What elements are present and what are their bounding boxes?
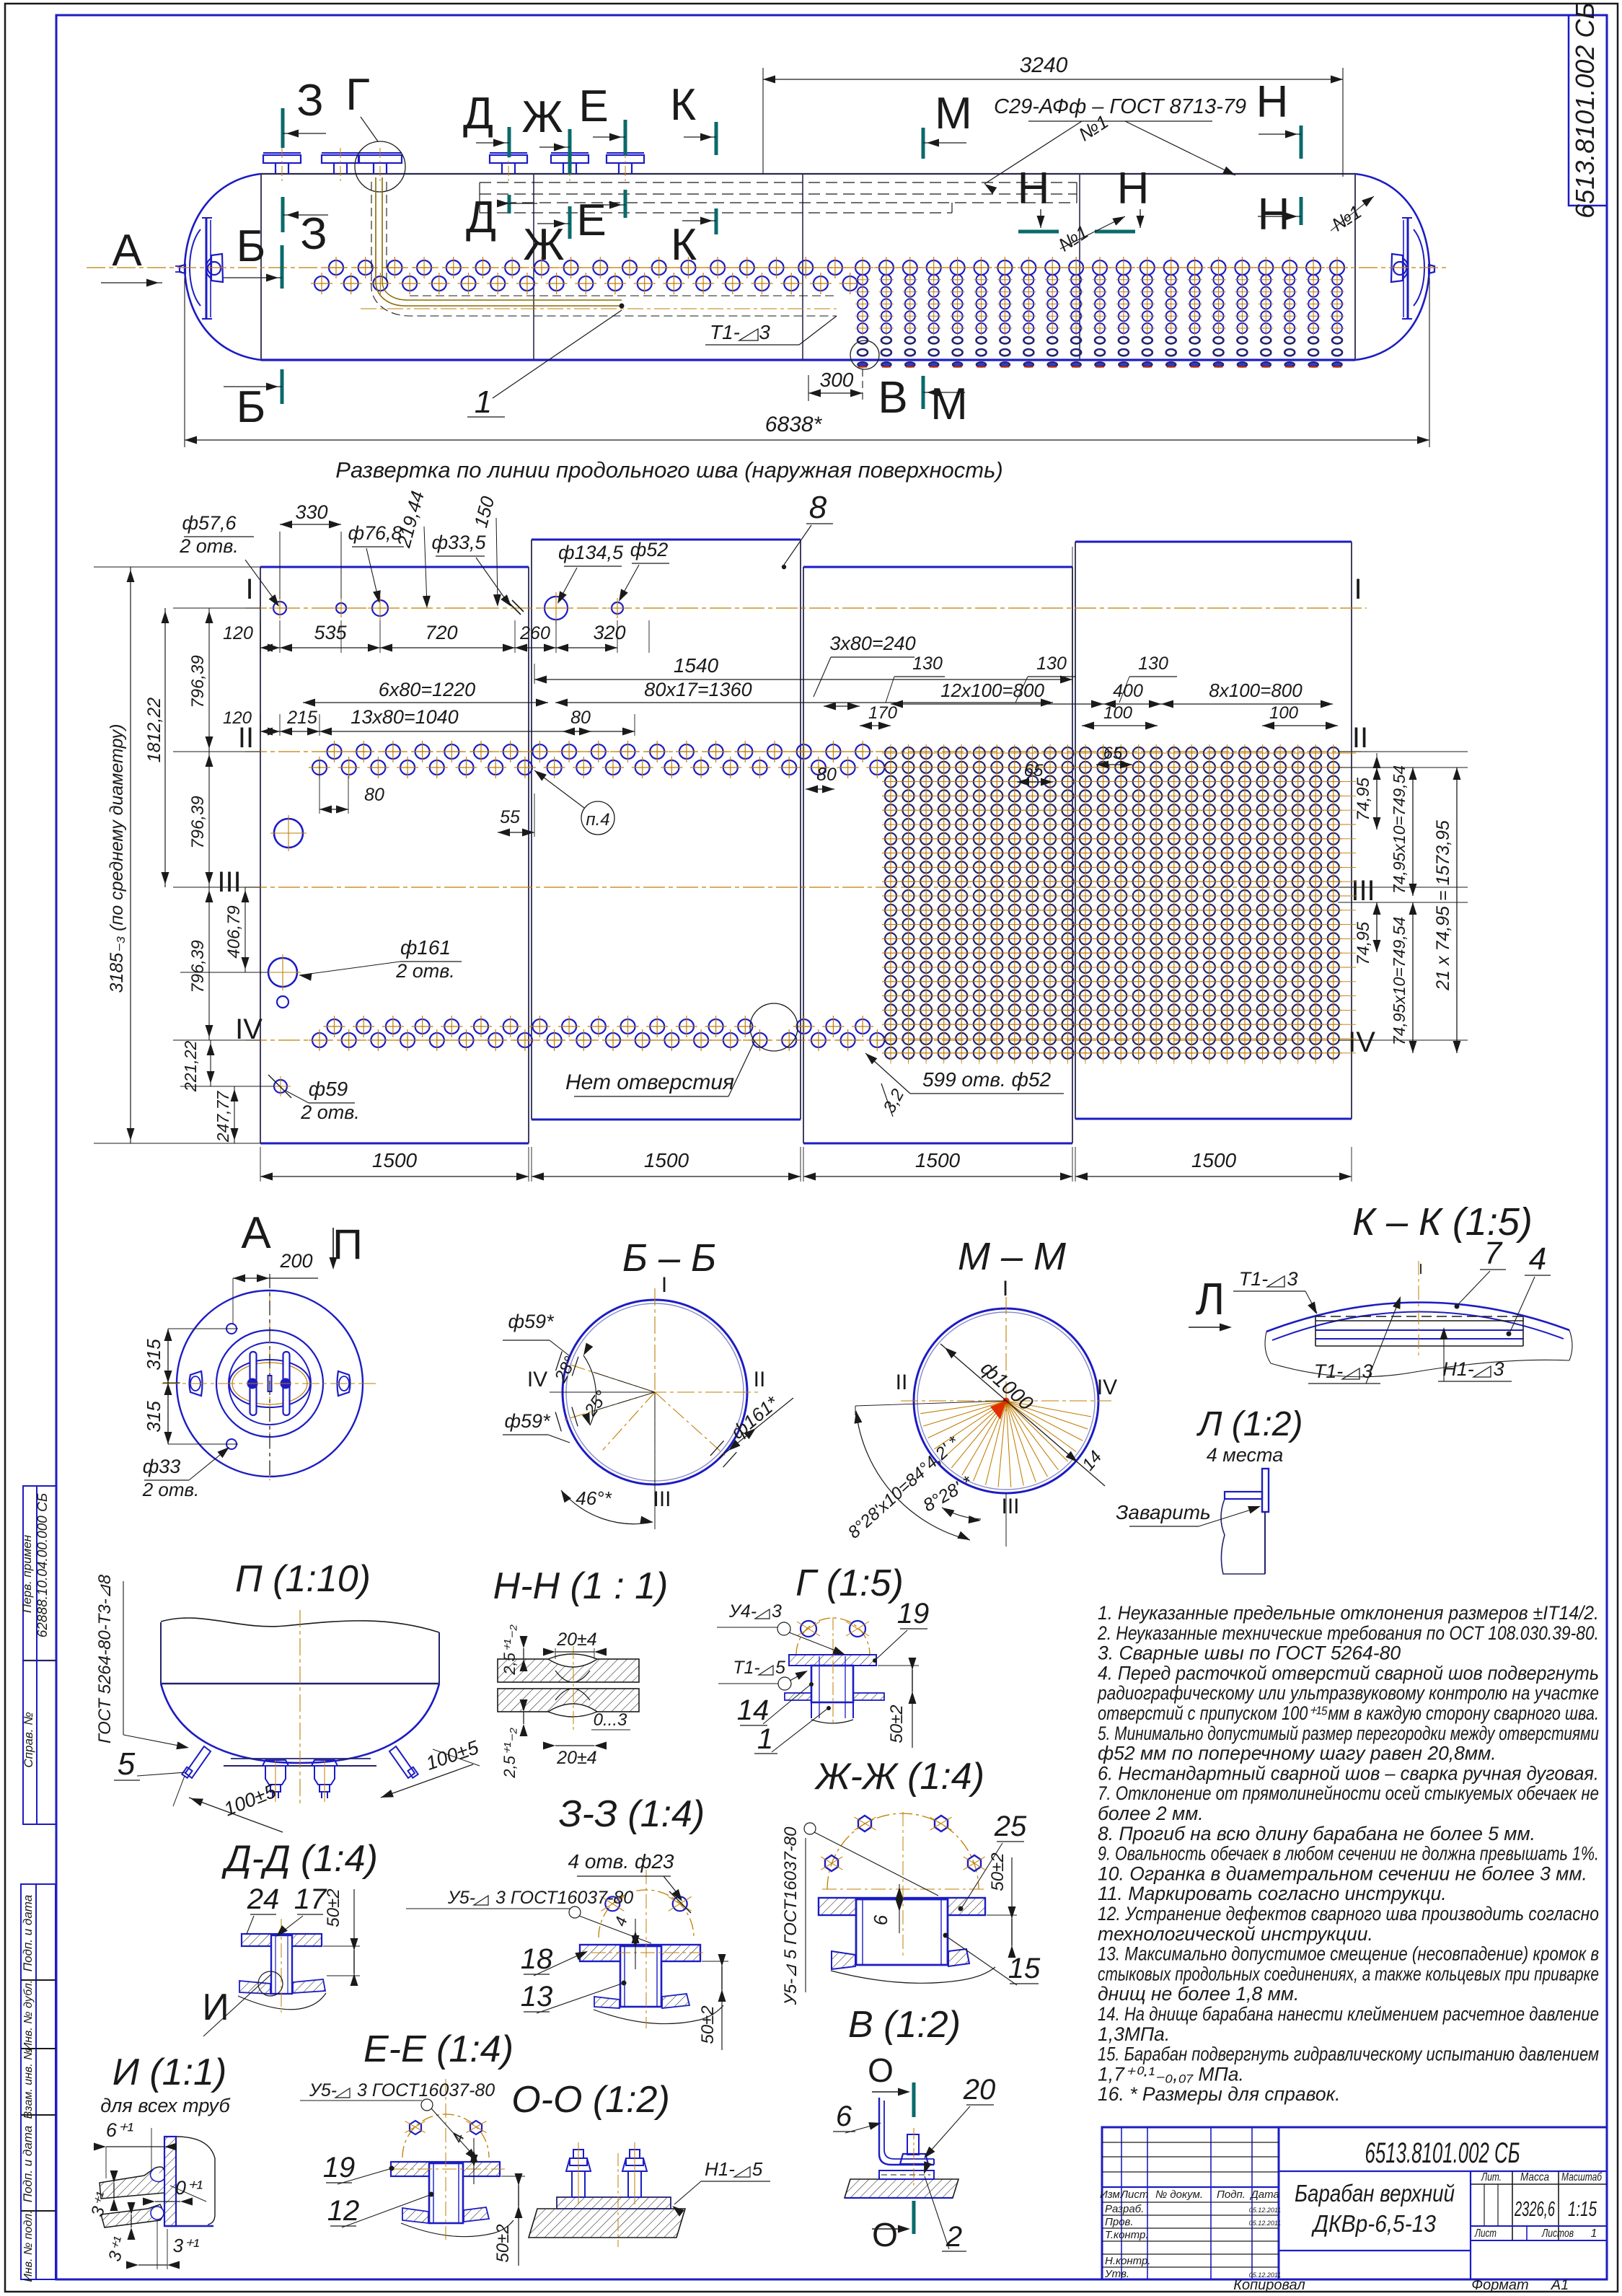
svg-text:З: З (296, 76, 323, 126)
svg-text:IV: IV (1097, 1376, 1117, 1399)
svg-text:ф134,5: ф134,5 (558, 542, 624, 563)
svg-text:К: К (670, 80, 696, 130)
svg-text:Листов: Листов (1541, 2227, 1574, 2240)
svg-text:Т1-: Т1- (733, 1658, 760, 1678)
svg-text:260: 260 (519, 623, 550, 643)
svg-text:74,95х10=749,54: 74,95х10=749,54 (1390, 765, 1409, 894)
svg-text:ф161: ф161 (400, 936, 451, 959)
svg-text:Б – Б: Б – Б (622, 1236, 716, 1280)
svg-text:Подп. и дата: Подп. и дата (21, 2126, 35, 2202)
svg-text:3. Сварные швы по ГОСТ 5264-8: 3. Сварные швы по ГОСТ 5264-80 (1098, 1642, 1401, 1664)
svg-text:74,95х10=749,54: 74,95х10=749,54 (1390, 917, 1409, 1045)
svg-text:днищ не более 1,8 мм.: днищ не более 1,8 мм. (1098, 1983, 1299, 2005)
svg-text:ф59*: ф59* (504, 1410, 551, 1432)
svg-text:7: 7 (1484, 1236, 1503, 1271)
svg-text:3: 3 (772, 1601, 782, 1622)
svg-text:И: И (202, 1987, 229, 2028)
svg-text:13х80=1040: 13х80=1040 (351, 706, 458, 728)
svg-text:130: 130 (912, 654, 943, 674)
svg-text:Ж: Ж (521, 92, 563, 142)
svg-text:технологической инструкции.: технологической инструкции. (1098, 1923, 1373, 1945)
svg-text:8: 8 (809, 490, 827, 525)
svg-text:Развертка по линии продольного: Развертка по линии продольного шва (нару… (335, 457, 1002, 483)
svg-text:12. Устранение дефектов сварн: 12. Устранение дефектов сварного шва про… (1098, 1903, 1599, 1925)
svg-text:5: 5 (118, 1746, 136, 1782)
svg-text:ф33: ф33 (143, 1456, 181, 1477)
svg-text:50±2: 50±2 (324, 1888, 343, 1927)
svg-text:ф33,5: ф33,5 (431, 532, 486, 553)
svg-text:П (1:10): П (1:10) (235, 1558, 371, 1600)
svg-text:50±2: 50±2 (988, 1852, 1008, 1891)
svg-text:2 отв.: 2 отв. (395, 960, 455, 982)
svg-text:3⁺¹: 3⁺¹ (173, 2235, 200, 2256)
svg-text:Перв. примен: Перв. примен (20, 1534, 34, 1613)
svg-text:I: I (661, 1273, 667, 1297)
svg-text:4. Перед расточкой отверсти: 4. Перед расточкой отверстий сварной шов… (1098, 1662, 1599, 1684)
svg-text:6: 6 (870, 1914, 891, 1925)
svg-text:ф59: ф59 (309, 1078, 348, 1100)
svg-text:3 ГОСТ16037-80: 3 ГОСТ16037-80 (357, 2080, 495, 2101)
svg-text:Л: Л (1196, 1275, 1225, 1324)
svg-text:65: 65 (1103, 744, 1123, 763)
svg-text:11. Маркировать согласно инст: 11. Маркировать согласно инструкци. (1098, 1883, 1447, 1904)
svg-text:III: III (1351, 875, 1375, 907)
svg-text:Е-Е (1:4): Е-Е (1:4) (363, 2028, 514, 2070)
svg-text:1540: 1540 (674, 654, 719, 677)
svg-text:50±2: 50±2 (698, 2005, 718, 2044)
svg-text:И (1:1): И (1:1) (113, 2051, 227, 2093)
svg-text:796,39: 796,39 (188, 796, 208, 848)
svg-text:315: 315 (143, 1339, 164, 1371)
svg-text:Лист: Лист (1120, 2189, 1149, 2201)
svg-text:Д: Д (466, 193, 496, 242)
svg-text:24: 24 (247, 1883, 280, 1915)
svg-text:К – К (1:5): К – К (1:5) (1352, 1200, 1533, 1244)
svg-text:III: III (1001, 1495, 1019, 1518)
svg-text:796,39: 796,39 (188, 655, 208, 708)
svg-text:Формат: Формат (1471, 2277, 1528, 2293)
svg-text:05.12.2011: 05.12.2011 (1249, 2220, 1281, 2227)
svg-text:74,95: 74,95 (1354, 777, 1373, 821)
svg-text:80х17=1360: 80х17=1360 (644, 679, 752, 700)
svg-text:20±4: 20±4 (556, 1748, 596, 1768)
svg-text:200: 200 (279, 1250, 312, 1272)
svg-text:535: 535 (314, 622, 347, 643)
svg-text:247,77: 247,77 (213, 1091, 232, 1143)
svg-text:2,5⁺¹₋₂: 2,5⁺¹₋₂ (501, 1624, 519, 1676)
svg-text:I: I (1002, 1277, 1008, 1301)
svg-text:3: 3 (1287, 1268, 1297, 1290)
svg-text:Д: Д (463, 89, 493, 138)
svg-text:ГОСТ 5264-80-Т3-⊿8: ГОСТ 5264-80-Т3-⊿8 (95, 1574, 115, 1743)
svg-text:13: 13 (521, 1981, 553, 2013)
svg-text:20±4: 20±4 (556, 1629, 596, 1650)
svg-text:80: 80 (816, 765, 837, 785)
svg-text:О: О (868, 2051, 894, 2089)
svg-text:2,5⁺¹₋₂: 2,5⁺¹₋₂ (501, 1728, 519, 1779)
svg-text:14: 14 (737, 1694, 770, 1726)
svg-text:74,95: 74,95 (1354, 921, 1373, 965)
svg-text:ДКВр-6,5-13: ДКВр-6,5-13 (1310, 2210, 1436, 2237)
svg-text:1. Неуказанные предельные отк: 1. Неуказанные предельные отклонения раз… (1098, 1602, 1599, 1624)
svg-text:А1: А1 (1551, 2277, 1569, 2293)
svg-text:ф52 мм по поперечному шагу рав: ф52 мм по поперечному шагу равен 20,8мм. (1098, 1743, 1497, 1764)
svg-text:0...3: 0...3 (594, 1710, 627, 1730)
svg-text:Е: Е (578, 82, 608, 131)
svg-text:Взам. инв. №: Взам. инв. № (22, 2048, 35, 2119)
svg-text:599 отв. ф52: 599 отв. ф52 (922, 1068, 1052, 1091)
svg-text:Н-Н (1 : 1): Н-Н (1 : 1) (493, 1565, 669, 1607)
svg-text:ф57,6: ф57,6 (182, 512, 237, 534)
svg-text:№ докум.: № докум. (1155, 2189, 1203, 2201)
svg-text:А: А (112, 226, 142, 276)
svg-text:Масштаб: Масштаб (1561, 2171, 1603, 2183)
svg-text:отверстий с припуском 100⁺¹⁵мм: отверстий с припуском 100⁺¹⁵мм в каждую … (1098, 1702, 1599, 1724)
svg-text:1500: 1500 (915, 1149, 961, 1171)
svg-text:А: А (241, 1208, 271, 1258)
svg-text:2326,6: 2326,6 (1514, 2198, 1555, 2221)
svg-text:2 отв.: 2 отв. (142, 1479, 200, 1500)
svg-text:Нет отверстия: Нет отверстия (565, 1070, 734, 1094)
svg-text:IV: IV (527, 1368, 547, 1391)
svg-text:ф59*: ф59* (508, 1311, 555, 1332)
svg-text:Заварить: Заварить (1116, 1501, 1211, 1523)
svg-text:1500: 1500 (372, 1149, 418, 1171)
svg-text:Разраб.: Разраб. (1105, 2203, 1144, 2215)
svg-text:55: 55 (500, 807, 520, 827)
svg-text:15: 15 (1008, 1953, 1041, 1984)
svg-text:Д-Д (1:4): Д-Д (1:4) (221, 1838, 378, 1880)
svg-text:2: 2 (946, 2221, 962, 2253)
svg-text:В (1:2): В (1:2) (848, 2004, 961, 2046)
svg-text:более 2 мм.: более 2 мм. (1098, 1803, 1204, 1824)
svg-text:3240: 3240 (1020, 53, 1068, 77)
svg-text:II: II (896, 1371, 908, 1394)
svg-text:0⁺¹: 0⁺¹ (175, 2177, 203, 2199)
svg-text:100: 100 (1103, 703, 1133, 723)
svg-text:У4-: У4- (728, 1601, 757, 1622)
svg-text:З-З (1:4): З-З (1:4) (559, 1793, 705, 1835)
svg-text:05.12.2011: 05.12.2011 (1249, 2207, 1281, 2214)
svg-text:10. Огранка в диаметральном с: 10. Огранка в диаметральном сечении не б… (1098, 1862, 1587, 1884)
svg-text:Т1-: Т1- (1239, 1268, 1269, 1290)
svg-text:Н: Н (1256, 77, 1289, 127)
svg-text:Лит.: Лит. (1481, 2171, 1502, 2183)
svg-text:Инв. № подл.: Инв. № подл. (22, 2210, 35, 2282)
svg-text:18: 18 (521, 1943, 553, 1975)
svg-text:Подп.: Подп. (1217, 2189, 1246, 2201)
svg-text:Копировал: Копировал (1233, 2277, 1305, 2293)
svg-text:Е: Е (576, 195, 606, 245)
svg-text:16. * Размеры для справок.: 16. * Размеры для справок. (1098, 2083, 1341, 2105)
svg-text:100: 100 (1269, 703, 1299, 723)
svg-text:3185₋₃ (по среднему диаметру): 3185₋₃ (по среднему диаметру) (107, 724, 127, 993)
svg-text:13. Максимально допустимое: 13. Максимально допустимое смещение (нес… (1098, 1943, 1599, 1965)
svg-text:400: 400 (1113, 681, 1143, 701)
svg-text:Н.контр.: Н.контр. (1105, 2255, 1151, 2267)
svg-text:Г (1:5): Г (1:5) (795, 1562, 904, 1604)
svg-text:Г: Г (345, 70, 370, 120)
svg-text:4: 4 (1529, 1241, 1546, 1277)
svg-text:6513.8101.002 СБ: 6513.8101.002 СБ (1365, 2137, 1520, 2169)
svg-text:IV: IV (1348, 1026, 1375, 1058)
svg-text:120: 120 (223, 708, 252, 728)
svg-text:Б: Б (237, 221, 266, 271)
svg-text:6: 6 (836, 2101, 852, 2132)
svg-text:I: I (1354, 573, 1362, 605)
svg-text:80: 80 (364, 785, 384, 805)
svg-text:М: М (935, 89, 972, 138)
svg-text:О-О (1:2): О-О (1:2) (511, 2079, 670, 2121)
svg-text:1: 1 (757, 1723, 773, 1755)
svg-text:М – М: М – М (958, 1235, 1066, 1278)
svg-text:796,39: 796,39 (188, 940, 208, 993)
svg-text:Барабан верхний: Барабан верхний (1295, 2180, 1455, 2207)
svg-text:п.4: п.4 (586, 810, 609, 830)
svg-text:М: М (930, 379, 968, 429)
svg-text:Пров.: Пров. (1105, 2216, 1134, 2228)
svg-text:170: 170 (868, 703, 898, 723)
svg-text:80: 80 (570, 708, 591, 728)
svg-text:2 отв.: 2 отв. (300, 1101, 360, 1123)
svg-text:12х100=800: 12х100=800 (940, 679, 1044, 701)
svg-text:19: 19 (323, 2152, 356, 2183)
svg-text:У5-: У5- (447, 1888, 475, 1908)
svg-text:5: 5 (752, 2158, 763, 2180)
svg-text:Т1-: Т1- (710, 321, 740, 343)
svg-text:У5-: У5- (309, 2080, 337, 2101)
svg-text:С29-АФф – ГОСТ 8713-79: С29-АФф – ГОСТ 8713-79 (994, 95, 1246, 118)
svg-text:1,3МПа.: 1,3МПа. (1098, 2023, 1170, 2045)
svg-text:1: 1 (1591, 2227, 1597, 2240)
svg-text:5. Минимально допустимый раз: 5. Минимально допустимый размер перегоро… (1098, 1723, 1599, 1744)
svg-text:720: 720 (425, 622, 457, 643)
svg-text:Изм.: Изм. (1100, 2189, 1123, 2201)
svg-text:320: 320 (593, 622, 625, 643)
svg-text:46°*: 46°* (576, 1487, 612, 1509)
svg-text:6. Нестандартный сварной шов: 6. Нестандартный сварной шов – сварка ру… (1098, 1762, 1599, 1784)
svg-text:Масса: Масса (1520, 2171, 1549, 2183)
svg-text:З: З (300, 209, 327, 259)
svg-text:III: III (217, 866, 241, 898)
svg-text:1,7⁺⁰·¹₋₀,₀₇ МПа.: 1,7⁺⁰·¹₋₀,₀₇ МПа. (1098, 2063, 1244, 2085)
svg-text:65: 65 (1024, 761, 1044, 780)
svg-text:9. Овальность обечаек в любом: 9. Овальность обечаек в любом сечении не… (1098, 1843, 1599, 1865)
svg-text:Н1-: Н1- (1442, 1358, 1474, 1380)
svg-text:Н1-: Н1- (705, 2158, 735, 2180)
svg-text:Т1-: Т1- (1314, 1360, 1344, 1382)
svg-text:Утв.: Утв. (1104, 2268, 1129, 2280)
svg-text:8х100=800: 8х100=800 (1209, 679, 1303, 701)
svg-text:Дата: Дата (1249, 2189, 1279, 2201)
svg-text:6⁺¹: 6⁺¹ (106, 2119, 133, 2141)
svg-text:406,79: 406,79 (224, 905, 244, 958)
svg-text:П: П (332, 1221, 363, 1268)
svg-text:1500: 1500 (1191, 1149, 1237, 1171)
svg-text:4 отв. ф23: 4 отв. ф23 (568, 1850, 674, 1873)
svg-text:62888.10.04.00.000 СБ: 62888.10.04.00.000 СБ (35, 1493, 50, 1637)
svg-text:Б: Б (237, 382, 266, 432)
svg-text:1812,22: 1812,22 (144, 698, 164, 762)
svg-text:8. Прогиб на всю длину бараба: 8. Прогиб на всю длину барабана не более… (1098, 1823, 1535, 1844)
svg-text:15. Барабан подвергнуть гид: 15. Барабан подвергнуть гидравлическому … (1098, 2044, 1599, 2065)
svg-text:Справ. №: Справ. № (22, 1712, 35, 1767)
svg-text:7. Отклонение от прямолинейно: 7. Отклонение от прямолинейности осей ст… (1098, 1782, 1599, 1804)
svg-text:5: 5 (775, 1658, 785, 1678)
svg-text:1: 1 (475, 384, 492, 420)
svg-text:6513.8101.002 СБ: 6513.8101.002 СБ (1570, 2, 1600, 219)
svg-text:I: I (245, 573, 253, 605)
svg-text:130: 130 (1036, 654, 1067, 674)
svg-text:3: 3 (1493, 1358, 1504, 1380)
svg-text:12: 12 (327, 2195, 360, 2227)
svg-text:Н: Н (1018, 164, 1050, 214)
svg-text:стыковых продольных соединения: стыковых продольных соединениях, а также… (1098, 1963, 1599, 1984)
svg-text:У5-⊿ 5 ГОСТ16037-80: У5-⊿ 5 ГОСТ16037-80 (781, 1826, 801, 2006)
svg-text:Ж: Ж (523, 220, 564, 270)
svg-text:О: О (872, 2216, 898, 2253)
svg-text:300: 300 (820, 369, 854, 391)
svg-text:Н: Н (1258, 190, 1290, 239)
svg-text:ф52: ф52 (630, 539, 669, 560)
svg-text:221,22: 221,22 (181, 1041, 200, 1093)
svg-text:II: II (754, 1368, 766, 1391)
svg-text:III: III (653, 1487, 671, 1511)
svg-text:330: 330 (295, 501, 327, 523)
svg-text:радиографическому или ультра: радиографическому или ультразвуковому ко… (1097, 1682, 1599, 1704)
svg-text:19: 19 (897, 1598, 930, 1629)
svg-text:1500: 1500 (644, 1149, 689, 1171)
svg-text:Инв. № дубл.: Инв. № дубл. (22, 1980, 35, 2051)
svg-text:В: В (878, 373, 907, 423)
svg-text:50±2: 50±2 (493, 2224, 513, 2262)
svg-text:Лист: Лист (1474, 2227, 1497, 2240)
svg-text:20: 20 (963, 2074, 996, 2106)
svg-text:для всех труб: для всех труб (100, 2095, 230, 2116)
svg-text:Т.контр.: Т.контр. (1105, 2229, 1149, 2241)
svg-text:Н: Н (1117, 164, 1150, 214)
svg-text:6х80=1220: 6х80=1220 (379, 679, 475, 700)
svg-text:14. На днище барабана нане: 14. На днище барабана нанести клеймением… (1098, 2003, 1599, 2025)
svg-text:3: 3 (759, 321, 770, 343)
svg-text:25: 25 (994, 1811, 1027, 1842)
svg-text:50±2: 50±2 (887, 1705, 907, 1743)
svg-text:Л (1:2): Л (1:2) (1196, 1405, 1303, 1443)
svg-text:21 х 74,95 = 1573,95: 21 х 74,95 = 1573,95 (1433, 820, 1453, 991)
svg-text:4 места: 4 места (1207, 1444, 1283, 1466)
svg-text:1:15: 1:15 (1568, 2198, 1597, 2221)
svg-text:3 ГОСТ16037-80: 3 ГОСТ16037-80 (495, 1888, 633, 1908)
svg-text:Подп. и дата: Подп. и дата (21, 1895, 35, 1971)
svg-text:315: 315 (143, 1401, 164, 1433)
svg-text:6838*: 6838* (765, 413, 823, 436)
svg-text:3х80=240: 3х80=240 (829, 633, 915, 654)
svg-text:Ж-Ж (1:4): Ж-Ж (1:4) (814, 1756, 984, 1798)
svg-text:2 отв.: 2 отв. (179, 535, 239, 557)
svg-text:130: 130 (1138, 654, 1168, 674)
svg-text:215: 215 (286, 708, 317, 728)
svg-text:II: II (1352, 722, 1368, 754)
svg-text:17: 17 (294, 1883, 327, 1915)
svg-text:120: 120 (223, 623, 253, 643)
svg-text:2. Неуказанные технические тр: 2. Неуказанные технические требования по… (1097, 1622, 1599, 1644)
